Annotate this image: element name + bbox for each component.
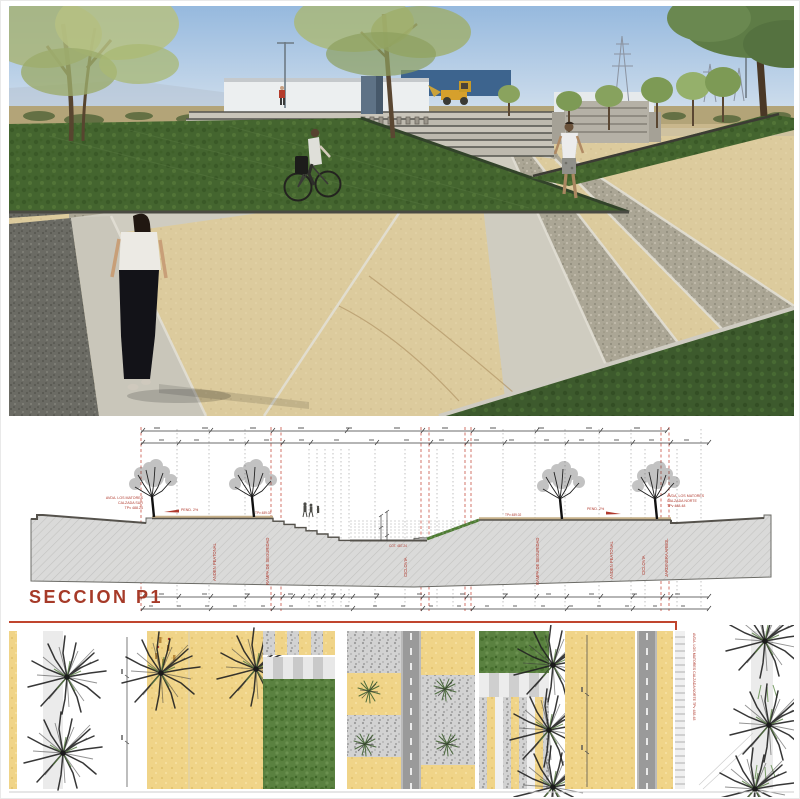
road-label-left-2: CALZADA SUR <box>118 501 143 505</box>
kiosk <box>361 76 383 114</box>
level-label-slope: TPv 489.02 <box>505 513 522 517</box>
distant-white-building <box>224 78 429 116</box>
vlabel-anden-right: ANDEN PEATONAL <box>609 541 614 579</box>
road-label-right-1: AVDA. LOS MATORES <box>667 494 705 498</box>
dimension-chain-bottom <box>141 594 711 611</box>
vlabel-jardinera: JARDINERA ARBOL <box>664 538 669 577</box>
step-mini-dims <box>379 510 389 541</box>
vlabel-ciclovia-left: CICLOVIA <box>403 557 408 577</box>
slope-label-left: PEND. 2% <box>181 508 199 512</box>
plan-dim-line-left <box>121 637 129 787</box>
vlabel-rampa-left: RAMPA DE SEGURIDAD <box>265 538 270 585</box>
level-label-steps: TPv 489.02 <box>255 511 272 515</box>
presentation-board: AVDA. LOS MATORES CALZADA SUR TPv 488.24… <box>0 0 800 799</box>
vlabel-ciclovia-right: CICLOVIA <box>641 555 646 575</box>
slope-label-right: PEND. 2% <box>587 507 605 511</box>
plan-road-label: AVDA. LOS MATORES CALZADA NORTE TPv 488.… <box>692 633 696 720</box>
plan-column-b <box>347 631 401 789</box>
plan-column-c <box>421 631 475 789</box>
plan-road-right <box>637 631 657 789</box>
park-photo <box>9 6 794 416</box>
level-label-center: COT. 487.24 <box>389 544 407 548</box>
plan-sand-field-right <box>565 631 635 789</box>
section-title: SECCION P1 <box>29 587 163 607</box>
road-label-right-3: TPv 488.48 <box>667 504 685 508</box>
plan-sand-strip-left <box>9 631 17 789</box>
plan-tree <box>28 636 106 714</box>
red-divider-line <box>9 621 677 623</box>
dimension-chain-top <box>141 428 711 445</box>
plan-grass-block-left <box>263 679 335 789</box>
vlabel-anden-left: ANDEN PEATONAL <box>212 543 217 581</box>
plan-tile-strip <box>675 631 685 789</box>
plan-drawing: AVDA. LOS MATORES CALZADA NORTE TPv 488.… <box>9 625 794 797</box>
section-mass <box>31 515 771 587</box>
section-drawing: AVDA. LOS MATORES CALZADA SUR TPv 488.24… <box>9 419 794 621</box>
road-label-left-3: TPv 488.24 <box>125 506 143 510</box>
road-label-left-1: AVDA. LOS MATORES <box>106 496 144 500</box>
vlabel-rampa-right: RAMPA DE SEGURIDAD <box>535 538 540 585</box>
plan-road-left <box>401 631 421 789</box>
plan-checkerboard <box>263 631 335 679</box>
road-label-right-2: CALZADA NORTE <box>667 499 697 503</box>
